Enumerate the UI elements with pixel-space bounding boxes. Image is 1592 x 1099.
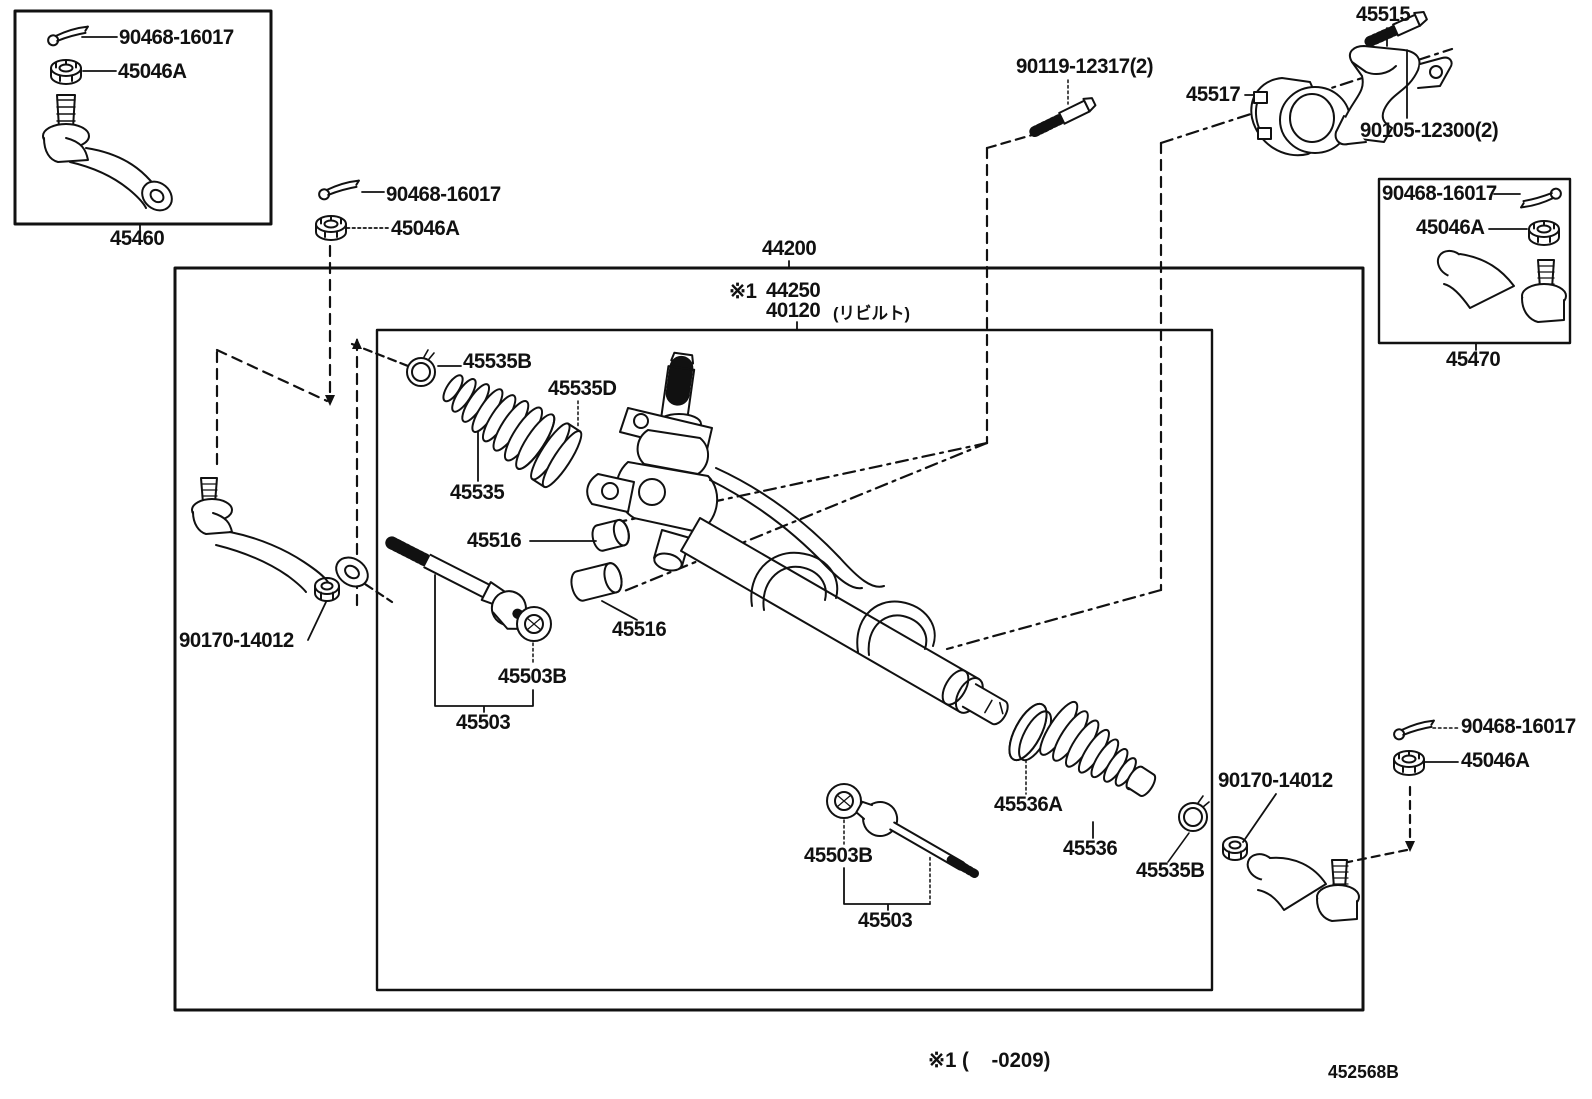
part-label-90105-12300: 90105-12300(2) [1360,120,1498,141]
part-label-45503B-left: 45503B [498,666,566,687]
part-label-90468-16017-box1: 90468-16017 [119,27,234,48]
part-label-90170-14012-right: 90170-14012 [1218,770,1333,791]
footnote-text: ※1 ( -0209) [928,1050,1050,1071]
parts-diagram-page: 90468-16017 45046A 45460 90468-16017 450… [0,0,1592,1099]
tre-right-art [1223,721,1458,921]
part-label-45536: 45536 [1063,838,1117,859]
part-label-45046A-box1: 45046A [118,61,186,82]
part-label-45535B-bottom: 45535B [1136,860,1204,881]
part-label-44250: 44250 [766,280,820,301]
tre-left-art [192,478,373,640]
part-label-45470: 45470 [1446,349,1500,370]
part-label-45460: 45460 [110,228,164,249]
sheet-number: 452568B [1328,1062,1399,1083]
boxr-art [1433,188,1566,350]
part-label-45535: 45535 [450,482,504,503]
part-label-45516-a: 45516 [467,530,521,551]
part-label-45046A-2: 45046A [391,218,459,239]
part-label-45517: 45517 [1186,84,1240,105]
part-label-45536A: 45536A [994,794,1062,815]
part-label-90468-16017-2: 90468-16017 [386,184,501,205]
part-note-rebuilt: (リビルト) [833,303,910,324]
part-label-45046A-3: 45046A [1461,750,1529,771]
part-label-45503-left: 45503 [456,712,510,733]
part-label-45503B-right: 45503B [804,845,872,866]
box1-art [43,27,178,232]
outer-assembly-box [175,268,1363,1010]
part-label-90468-16017-boxr: 90468-16017 [1382,183,1497,204]
diagram-lineart [0,0,1592,1099]
footnote-ref-1: ※1 [729,281,756,302]
part-label-45046A-boxr: 45046A [1416,217,1484,238]
part-label-45515: 45515 [1356,4,1410,25]
part-label-45503-right: 45503 [858,910,912,931]
part-label-44200: 44200 [762,238,816,259]
construction-lines [217,49,1452,862]
part-label-90170-14012-left: 90170-14012 [179,630,294,651]
part-label-45516-b: 45516 [612,619,666,640]
part-label-45535D: 45535D [548,378,616,399]
part-label-45535B-top: 45535B [463,351,531,372]
gear-housing-art [587,352,1014,732]
part-label-90468-16017-3: 90468-16017 [1461,716,1576,737]
pin2-art [316,181,388,240]
bushing-art [530,518,637,620]
part-label-90119-12317: 90119-12317(2) [1016,56,1153,77]
part-label-40120: 40120 [766,300,820,321]
